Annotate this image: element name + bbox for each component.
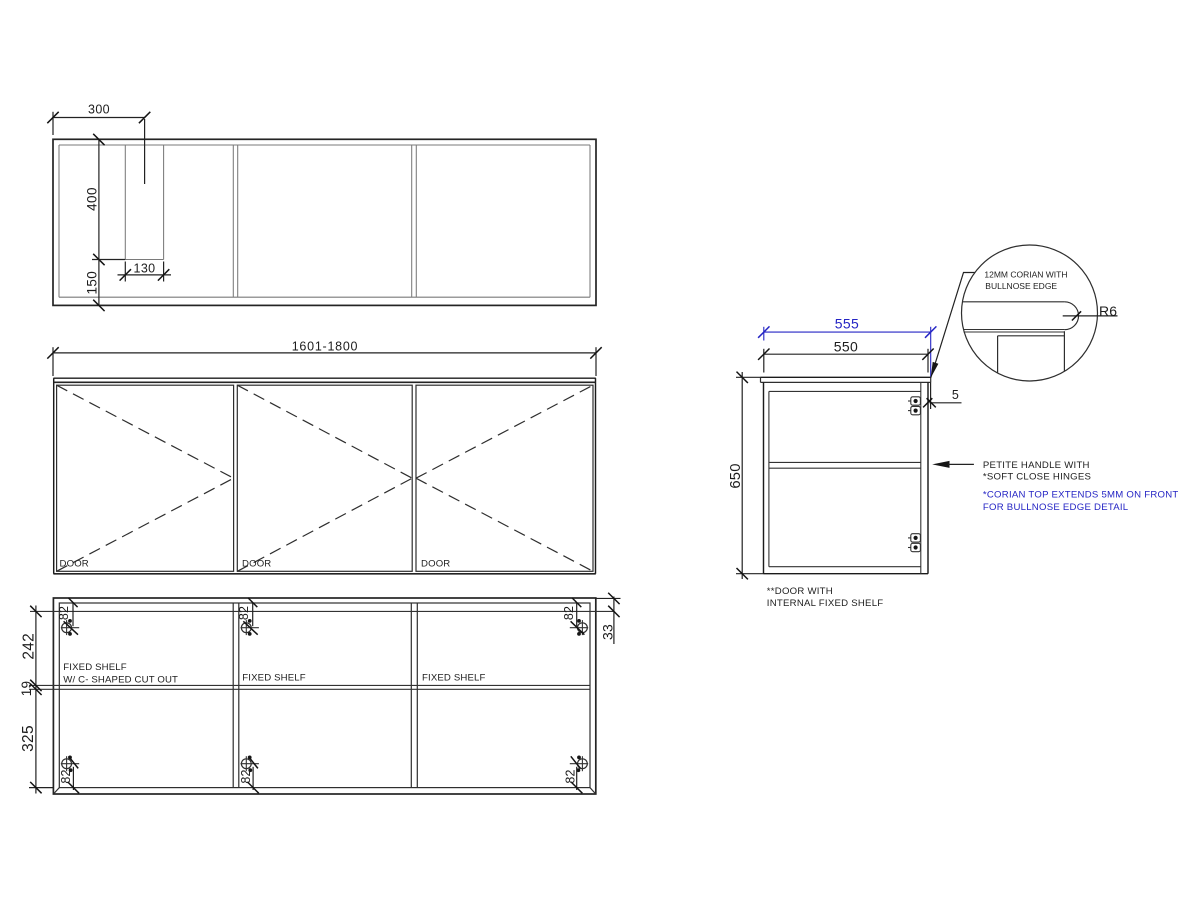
svg-text:FIXED SHELF: FIXED SHELF	[63, 662, 127, 673]
svg-text:*SOFT CLOSE HINGES: *SOFT CLOSE HINGES	[983, 472, 1091, 483]
svg-text:550: 550	[834, 339, 858, 355]
svg-text:**DOOR WITH: **DOOR WITH	[767, 586, 833, 597]
svg-text:82: 82	[562, 606, 576, 620]
svg-text:300: 300	[88, 103, 110, 117]
svg-text:82: 82	[59, 769, 73, 783]
svg-text:*CORIAN TOP EXTENDS 5MM ON FRO: *CORIAN TOP EXTENDS 5MM ON FRONT	[983, 490, 1179, 501]
svg-text:BULLNOSE EDGE: BULLNOSE EDGE	[985, 281, 1057, 291]
svg-text:INTERNAL FIXED SHELF: INTERNAL FIXED SHELF	[767, 598, 884, 609]
svg-text:DOOR: DOOR	[242, 559, 271, 570]
svg-text:33: 33	[599, 624, 615, 640]
svg-text:12MM CORIAN WITH: 12MM CORIAN WITH	[984, 270, 1067, 280]
svg-text:400: 400	[84, 187, 99, 211]
svg-text:19: 19	[19, 681, 34, 696]
svg-text:82: 82	[239, 769, 253, 783]
svg-text:650: 650	[728, 463, 744, 488]
svg-text:FOR BULLNOSE EDGE DETAIL: FOR BULLNOSE EDGE DETAIL	[983, 502, 1129, 513]
svg-text:DOOR: DOOR	[60, 559, 89, 570]
svg-text:82: 82	[57, 606, 71, 620]
svg-text:PETITE HANDLE WITH: PETITE HANDLE WITH	[983, 460, 1090, 471]
svg-text:1601-1800: 1601-1800	[292, 340, 359, 354]
svg-text:130: 130	[133, 262, 155, 276]
svg-text:82: 82	[564, 769, 578, 783]
svg-text:FIXED SHELF: FIXED SHELF	[242, 673, 305, 684]
svg-text:325: 325	[20, 725, 37, 752]
svg-text:R6: R6	[1099, 303, 1117, 319]
svg-text:555: 555	[835, 316, 859, 332]
svg-text:DOOR: DOOR	[421, 559, 450, 570]
svg-text:242: 242	[21, 633, 38, 660]
svg-text:150: 150	[84, 271, 99, 295]
svg-text:W/ C- SHAPED CUT OUT: W/ C- SHAPED CUT OUT	[63, 674, 178, 685]
svg-text:5: 5	[952, 388, 959, 402]
svg-text:82: 82	[237, 606, 251, 620]
svg-text:FIXED SHELF: FIXED SHELF	[422, 673, 486, 684]
